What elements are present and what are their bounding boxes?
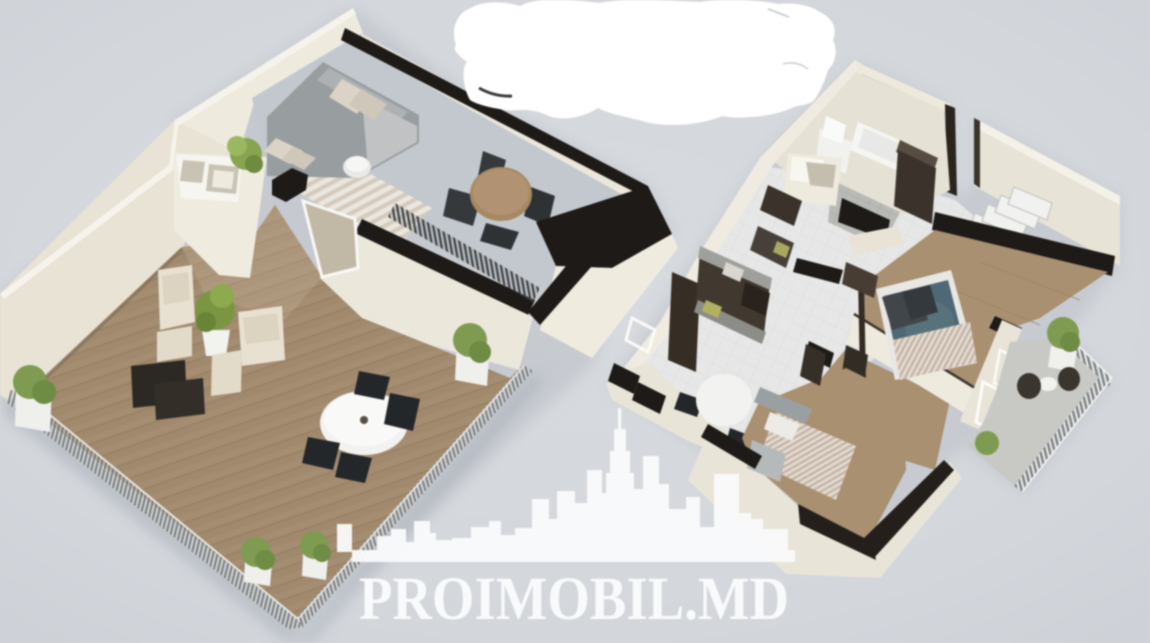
svg-text:PROIMOBIL.MD: PROIMOBIL.MD: [359, 566, 789, 633]
